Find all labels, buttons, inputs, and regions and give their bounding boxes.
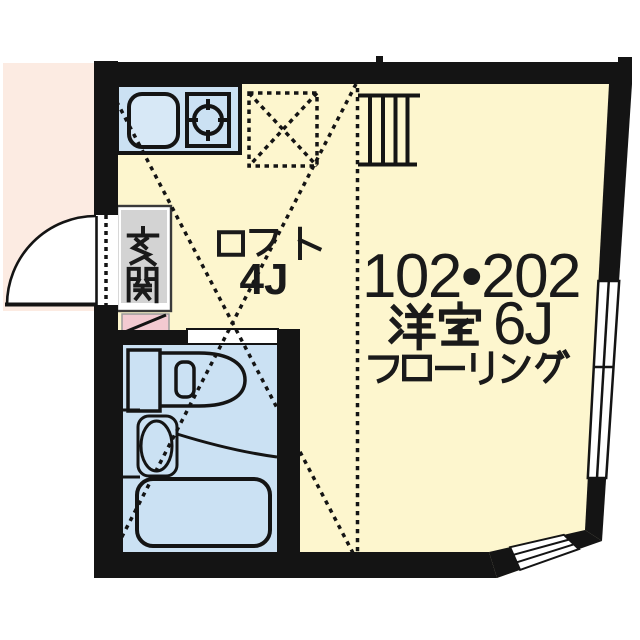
svg-text:4J: 4J <box>240 255 289 304</box>
svg-text:6J: 6J <box>493 290 552 357</box>
